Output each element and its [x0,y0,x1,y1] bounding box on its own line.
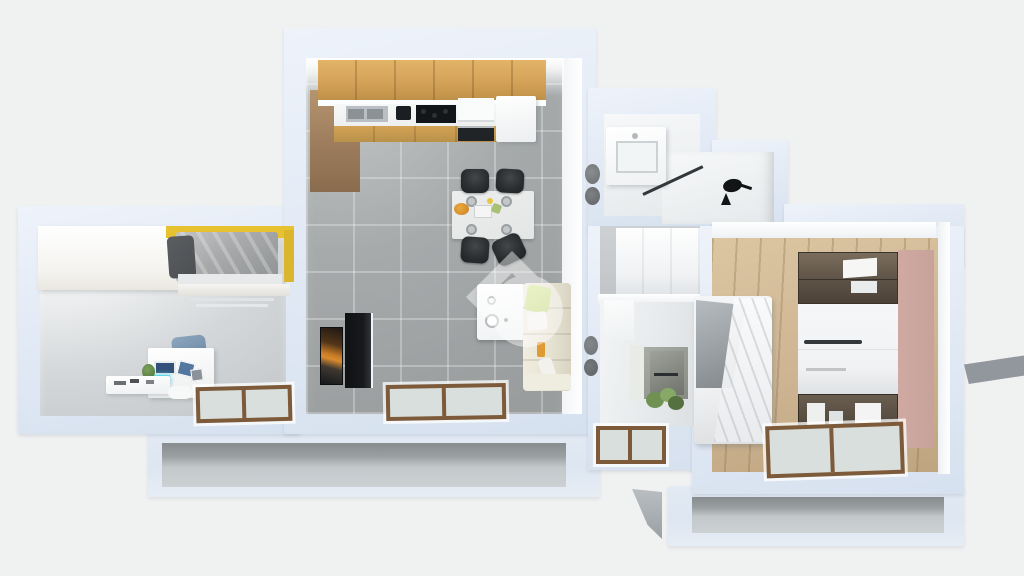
vanity-sink [606,127,666,185]
watermark-shape [466,251,563,347]
fruit-bowl [454,203,469,215]
lemon [487,198,493,204]
dining-chair [461,169,489,193]
bed-footboard [178,284,290,296]
counter-appliance [458,98,494,122]
sofa-arm [523,374,571,390]
corridor-wardrobe [616,226,700,294]
drawer-handle [806,368,846,371]
wardrobe-large [798,248,934,448]
sink-basin [348,109,364,119]
burner [421,109,426,114]
dining-chair [495,168,524,193]
toilet [585,164,600,184]
window-mullion [829,428,835,472]
dining-table [452,191,534,239]
hallway-floor [662,152,774,224]
coffee-machine [396,106,411,120]
linen-stack [851,281,877,293]
foundation-band-right [668,486,964,546]
handle [654,373,678,376]
foundation-recess [692,497,944,533]
foundation-band-left [148,431,600,497]
watermark-logo [430,234,600,364]
wardrobe-pink-side [898,250,934,448]
shelf-line [799,279,897,280]
wardrobe-glass-top [798,252,898,304]
wardrobe-drawers [798,304,898,394]
laptop [154,361,176,375]
drawer-divider [798,349,898,350]
window-mullion [242,390,247,418]
foundation-recess [162,443,566,487]
bidet [585,187,600,205]
double-bed [694,296,772,444]
bath-shelf [604,300,634,340]
bed-pillow [167,235,197,279]
plant [668,396,684,410]
bed-frame-side [284,230,294,282]
exterior-wedge [964,354,1024,384]
media-cabinet [345,313,373,388]
napkin [474,205,492,218]
fridge-cabinet [496,96,536,142]
foundation-wedge [632,489,662,539]
faucet [632,133,638,139]
wardrobe [38,226,180,290]
desk-photo [190,368,204,382]
bed-rail [196,304,268,307]
bedroom-left-window [196,385,293,424]
plate [501,196,512,207]
bed-sheet [178,274,282,284]
linen-stack [843,258,877,278]
living-window [386,383,507,421]
hob [416,105,456,123]
tv-art-screen [320,327,343,385]
floorplan-scene [0,0,1024,576]
burner [443,109,448,114]
oven [458,126,494,141]
desk-clutter [146,380,154,384]
bedroom-right-window [765,422,905,479]
window-mullion [442,388,446,416]
bed-rail [190,298,274,301]
bedroom-right-wall-face [938,222,950,474]
bathroom-window [596,426,666,464]
sink-basin [367,109,383,119]
burner [432,113,437,118]
window-mullion [628,430,632,460]
drawer-handle [804,340,862,344]
desk-clutter [130,379,139,383]
side-pod [168,386,192,399]
sink-bowl [616,141,658,173]
kitchen-sink [346,106,388,122]
column-side [630,345,644,401]
desk-clutter [114,381,126,385]
